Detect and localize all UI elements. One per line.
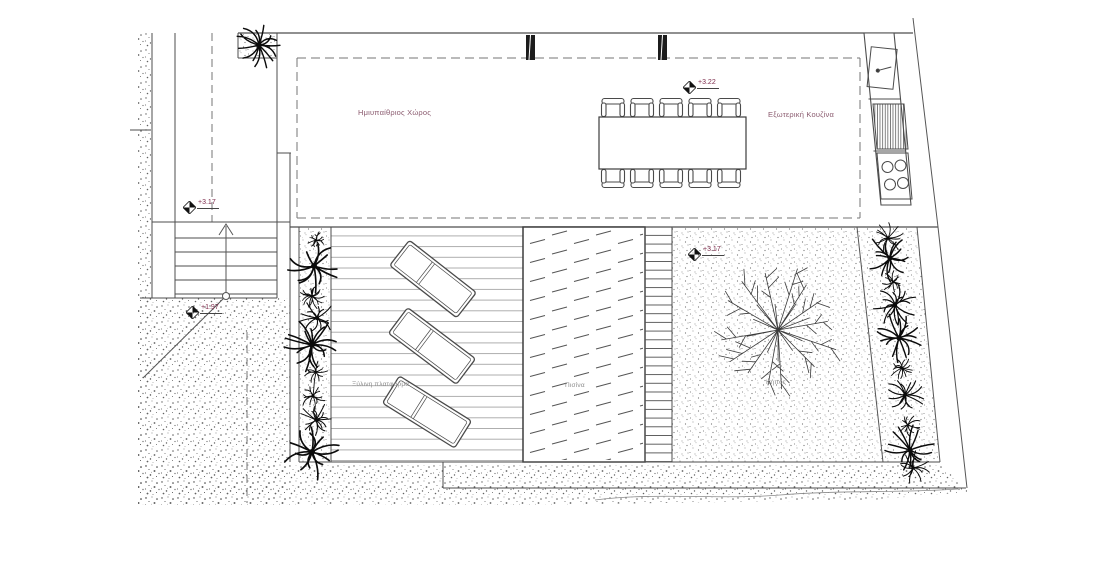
plant-center (256, 42, 261, 47)
elevation-marker-icon (683, 81, 696, 94)
swimming-pool (523, 227, 672, 462)
garden-gravel (672, 227, 883, 462)
plant-center (314, 418, 318, 422)
plant-center (311, 263, 317, 269)
elevation-marker: +3.17 (183, 201, 219, 214)
plant-center (892, 281, 894, 283)
plant-center (311, 295, 314, 298)
elevation-marker: +3.22 (683, 81, 719, 94)
elevation-value: +3.17 (702, 246, 724, 256)
plant-center (315, 239, 317, 241)
elevation-value: +3.17 (197, 199, 219, 209)
elevation-marker: +3.17 (688, 248, 724, 261)
plant-center (315, 371, 317, 373)
pool-steps (645, 227, 672, 462)
plant-center (887, 255, 892, 260)
elevation-marker-icon (186, 306, 199, 319)
left-wall (130, 33, 291, 298)
elevation-value: +3.22 (697, 79, 719, 89)
dining-table (599, 117, 746, 169)
floor-plan-canvas: Ημιυπαίθριος Χώρος Εξωτερική Κουζίνα Ξύλ… (0, 0, 1104, 569)
plant-center (893, 303, 897, 307)
elevation-marker-icon (688, 248, 701, 261)
plant-center (903, 393, 907, 397)
plant-center (315, 316, 319, 320)
staircase (140, 222, 290, 298)
plant-center (901, 367, 904, 370)
plant-center (311, 394, 314, 397)
floor-plan-drawing (0, 0, 1104, 569)
elevation-value: +1.97 (200, 304, 222, 314)
plant-center (886, 236, 889, 239)
elevation-marker: +1.97 (186, 306, 222, 319)
plant-center (309, 342, 315, 348)
pergola-columns (526, 35, 667, 60)
elevation-marker-icon (183, 201, 196, 214)
plant-center (907, 447, 912, 452)
plant-center (309, 449, 315, 455)
plant-center (911, 466, 915, 470)
plant-center (907, 424, 910, 427)
kitchen-grill (873, 104, 908, 149)
plant-center (896, 335, 901, 340)
